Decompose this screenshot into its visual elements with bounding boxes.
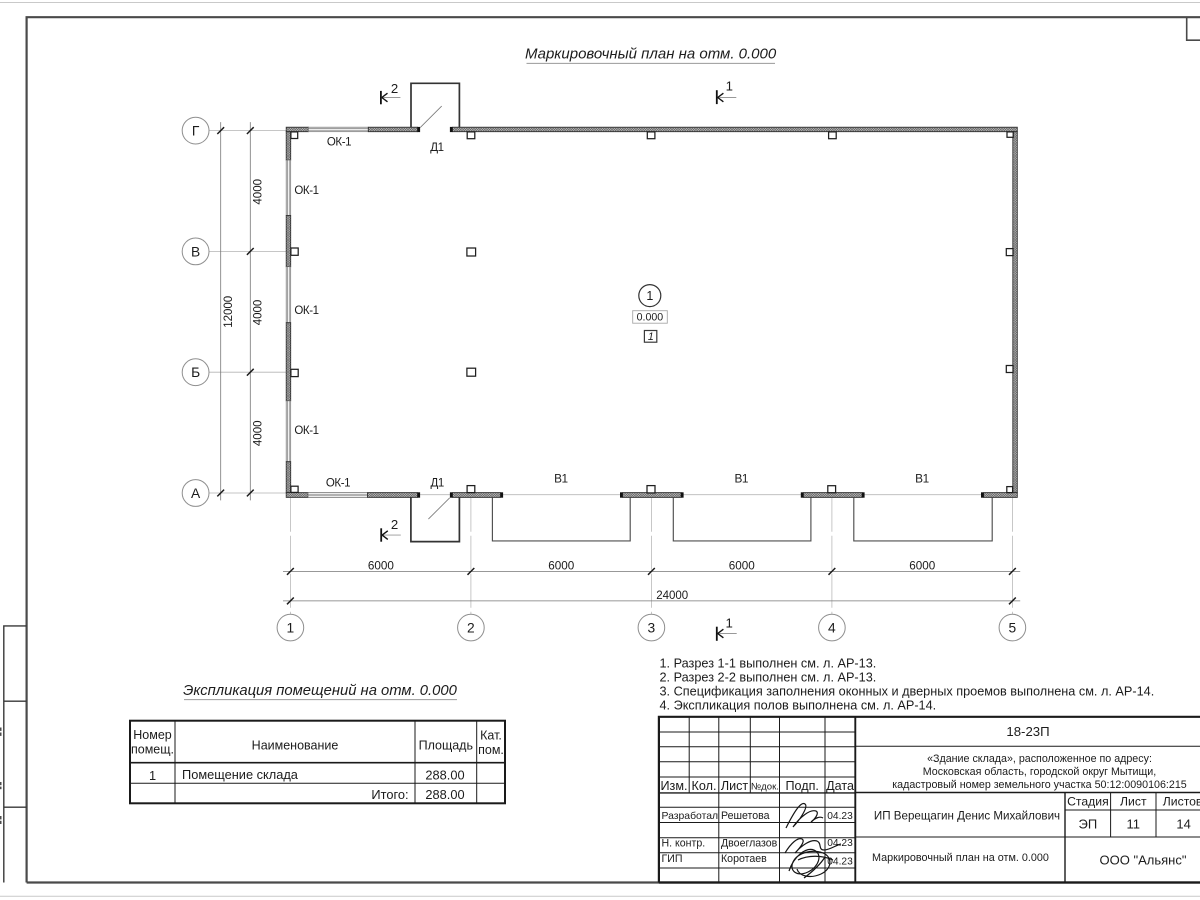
- svg-text:помещ.: помещ.: [131, 743, 174, 757]
- svg-text:Листов: Листов: [1163, 795, 1200, 809]
- svg-text:Экспликация помещений на отм.: Экспликация помещений на отм. 0.000: [183, 683, 457, 699]
- svg-text:3. Спецификация заполнения око: 3. Спецификация заполнения оконных и две…: [660, 684, 1155, 698]
- svg-text:А: А: [191, 486, 201, 501]
- svg-text:Маркировочный план на отм. 0.0: Маркировочный план на отм. 0.000: [872, 852, 1049, 864]
- svg-text:ГИП: ГИП: [662, 853, 683, 865]
- svg-text:04.23: 04.23: [827, 857, 853, 868]
- svg-text:пом.: пом.: [478, 743, 504, 757]
- svg-text:04.23: 04.23: [827, 811, 853, 822]
- svg-text:ООО "Альянс": ООО "Альянс": [1100, 853, 1187, 868]
- svg-text:1: 1: [646, 289, 653, 303]
- svg-text:2: 2: [467, 621, 475, 636]
- svg-text:18-23П: 18-23П: [1006, 724, 1049, 739]
- svg-text:Стадия: Стадия: [1067, 795, 1109, 809]
- svg-text:4. Экспликация полов выполнена: 4. Экспликация полов выполнена см. л. АР…: [660, 698, 937, 712]
- svg-text:В1: В1: [915, 472, 929, 486]
- svg-text:В: В: [191, 244, 200, 259]
- svg-text:5: 5: [1009, 621, 1017, 636]
- svg-text:2: 2: [391, 517, 398, 532]
- svg-text:Итого:: Итого:: [371, 787, 408, 802]
- svg-text:288.00: 288.00: [425, 768, 464, 783]
- svg-text:4000: 4000: [252, 421, 264, 447]
- svg-text:Г: Г: [192, 124, 200, 139]
- svg-text:0.000: 0.000: [637, 312, 664, 324]
- svg-text:1: 1: [726, 79, 733, 94]
- svg-text:Кол.: Кол.: [692, 779, 717, 793]
- svg-text:14: 14: [1176, 817, 1190, 832]
- svg-text:12000: 12000: [223, 296, 235, 328]
- svg-text:288.00: 288.00: [425, 787, 464, 802]
- svg-text:ОК-1: ОК-1: [294, 185, 318, 197]
- svg-text:Кат.: Кат.: [480, 729, 502, 743]
- svg-text:2. Разрез 2-2 выполнен см. л.: 2. Разрез 2-2 выполнен см. л. АР-13.: [660, 670, 877, 684]
- svg-text:Д1: Д1: [430, 142, 443, 154]
- svg-text:1: 1: [149, 768, 156, 783]
- svg-text:ОК-1: ОК-1: [294, 425, 318, 437]
- svg-text:Б: Б: [191, 365, 200, 380]
- svg-text:3: 3: [648, 621, 656, 636]
- svg-text:Наименование: Наименование: [252, 738, 339, 752]
- svg-text:2: 2: [391, 81, 398, 96]
- svg-text:1: 1: [726, 615, 733, 630]
- svg-text:Коротаев: Коротаев: [721, 853, 767, 865]
- svg-text:Площадь: Площадь: [419, 739, 473, 753]
- svg-text:04.23: 04.23: [827, 838, 853, 849]
- svg-text:4: 4: [828, 621, 836, 636]
- svg-text:Номер: Номер: [133, 728, 172, 742]
- svg-text:1: 1: [287, 621, 295, 636]
- svg-text:Подп.: Подп.: [785, 779, 818, 793]
- svg-text:Лист: Лист: [1120, 795, 1147, 809]
- svg-text:Московская область, городской: Московская область, городской округ Мыти…: [923, 766, 1156, 778]
- svg-text:Дата: Дата: [826, 779, 854, 793]
- svg-text:Разработал: Разработал: [662, 810, 719, 822]
- svg-text:6000: 6000: [368, 560, 395, 573]
- svg-text:Двоеглазов: Двоеглазов: [721, 838, 778, 850]
- svg-text:Решетова: Решетова: [721, 810, 770, 822]
- svg-text:Изм.: Изм.: [661, 779, 688, 793]
- svg-text:№док.: №док.: [751, 781, 779, 792]
- svg-text:11: 11: [1127, 817, 1141, 832]
- svg-text:6000: 6000: [729, 560, 756, 573]
- svg-text:ОК-1: ОК-1: [327, 136, 351, 148]
- svg-text:кадастровый номер земельного у: кадастровый номер земельного участка 50:…: [892, 779, 1186, 791]
- svg-text:Н. контр.: Н. контр.: [662, 838, 706, 850]
- svg-text:6000: 6000: [909, 560, 936, 573]
- svg-text:В1: В1: [554, 472, 568, 486]
- svg-text:Лист: Лист: [721, 779, 749, 793]
- svg-text:4000: 4000: [252, 179, 264, 205]
- svg-text:1: 1: [648, 331, 654, 343]
- svg-text:1. Разрез 1-1 выполнен см. л.: 1. Разрез 1-1 выполнен см. л. АР-13.: [660, 656, 877, 670]
- svg-text:«Здание склада», расположенное: «Здание склада», расположенное по адресу…: [927, 753, 1152, 765]
- svg-text:В1: В1: [734, 472, 748, 486]
- svg-text:24000: 24000: [656, 590, 688, 602]
- svg-text:Маркировочный план на отм. 0.0: Маркировочный план на отм. 0.000: [525, 45, 777, 62]
- svg-text:ОК-1: ОК-1: [294, 305, 318, 317]
- svg-text:ИП Верещагин Денис Михайлович: ИП Верещагин Денис Михайлович: [874, 809, 1060, 822]
- svg-text:ОК-1: ОК-1: [326, 478, 350, 490]
- svg-text:Помещение склада: Помещение склада: [182, 767, 299, 782]
- svg-text:Д1: Д1: [431, 478, 444, 490]
- svg-text:ЭП: ЭП: [1079, 817, 1098, 832]
- svg-text:4000: 4000: [252, 300, 264, 326]
- svg-text:6000: 6000: [548, 560, 575, 573]
